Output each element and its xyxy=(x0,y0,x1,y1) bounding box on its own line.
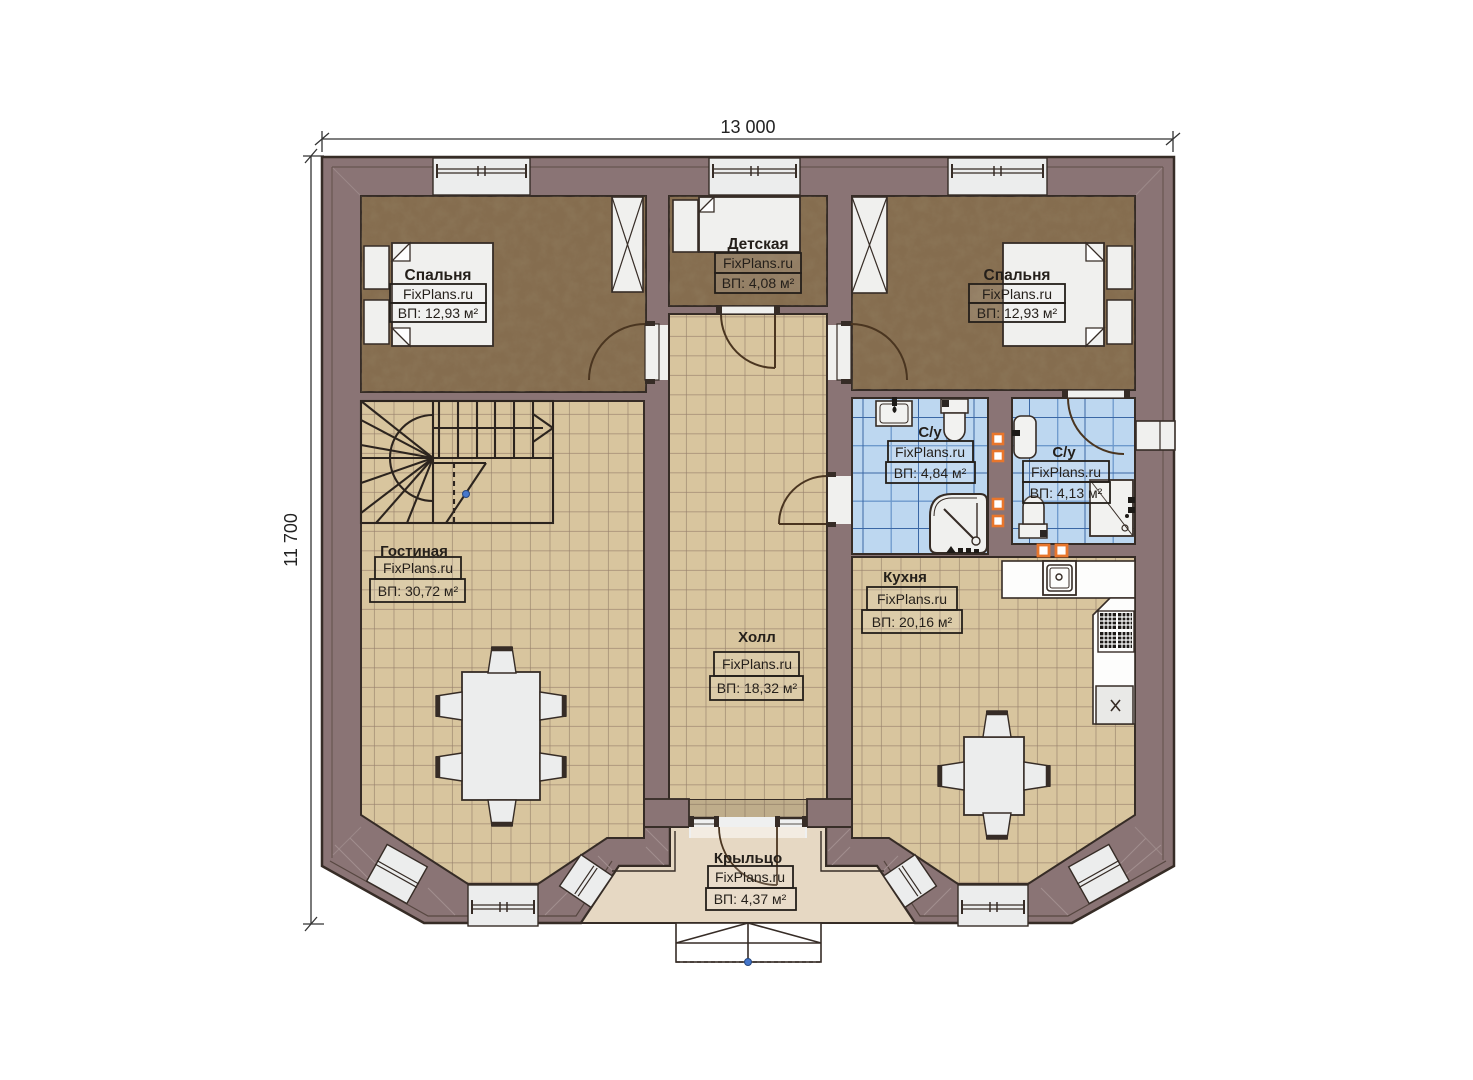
svg-text:FixPlans.ru: FixPlans.ru xyxy=(403,286,473,302)
svg-text:FixPlans.ru: FixPlans.ru xyxy=(1031,464,1101,480)
svg-text:FixPlans.ru: FixPlans.ru xyxy=(715,869,785,885)
svg-text:ВП: 12,93 м²: ВП: 12,93 м² xyxy=(977,305,1058,321)
svg-text:Спальня: Спальня xyxy=(405,267,472,284)
svg-text:ВП: 4,13 м²: ВП: 4,13 м² xyxy=(1030,485,1103,501)
svg-text:ВП: 12,93 м²: ВП: 12,93 м² xyxy=(398,305,479,321)
svg-text:ВП: 30,72 м²: ВП: 30,72 м² xyxy=(378,583,459,599)
svg-text:FixPlans.ru: FixPlans.ru xyxy=(877,591,947,607)
svg-text:FixPlans.ru: FixPlans.ru xyxy=(723,255,793,271)
svg-text:ВП: 4,84 м²: ВП: 4,84 м² xyxy=(894,465,967,481)
svg-text:ВП: 4,08 м²: ВП: 4,08 м² xyxy=(722,275,795,291)
svg-text:ВП: 20,16 м²: ВП: 20,16 м² xyxy=(872,614,953,630)
svg-text:ВП: 18,32 м²: ВП: 18,32 м² xyxy=(717,680,798,696)
svg-text:Крыльцо: Крыльцо xyxy=(714,850,782,867)
svg-text:FixPlans.ru: FixPlans.ru xyxy=(895,444,965,460)
svg-text:FixPlans.ru: FixPlans.ru xyxy=(383,560,453,576)
svg-text:Кухня: Кухня xyxy=(883,569,927,586)
svg-text:Спальня: Спальня xyxy=(984,267,1051,284)
svg-text:С/у: С/у xyxy=(918,424,942,441)
svg-text:11 700: 11 700 xyxy=(281,513,301,567)
svg-text:Детская: Детская xyxy=(727,236,788,253)
svg-text:13 000: 13 000 xyxy=(720,117,775,137)
svg-text:Холл: Холл xyxy=(738,629,776,646)
svg-text:FixPlans.ru: FixPlans.ru xyxy=(722,656,792,672)
svg-text:FixPlans.ru: FixPlans.ru xyxy=(982,286,1052,302)
svg-text:С/у: С/у xyxy=(1052,444,1076,461)
svg-text:ВП: 4,37 м²: ВП: 4,37 м² xyxy=(714,891,787,907)
